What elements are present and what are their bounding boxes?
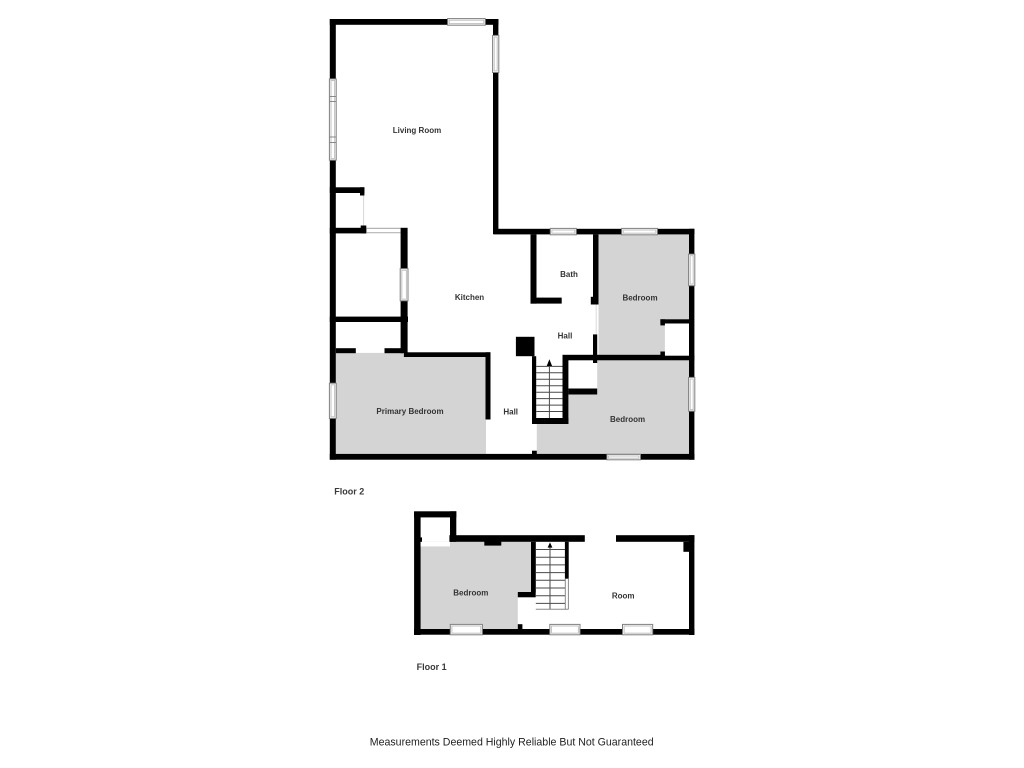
svg-text:Bedroom: Bedroom	[453, 588, 488, 597]
svg-text:Living Room: Living Room	[393, 126, 441, 135]
svg-text:Kitchen: Kitchen	[455, 293, 484, 302]
svg-text:Bath: Bath	[560, 270, 578, 279]
svg-text:Primary Bedroom: Primary Bedroom	[376, 407, 443, 416]
svg-text:Floor 2: Floor 2	[334, 487, 364, 497]
svg-text:Hall: Hall	[558, 332, 573, 341]
svg-text:Floor 1: Floor 1	[417, 662, 447, 672]
svg-text:Measurements Deemed Highly Rel: Measurements Deemed Highly Reliable But …	[370, 737, 654, 749]
svg-text:Bedroom: Bedroom	[610, 415, 645, 424]
svg-text:Hall: Hall	[503, 407, 518, 416]
svg-text:Bedroom: Bedroom	[622, 293, 657, 302]
svg-text:Room: Room	[612, 592, 635, 601]
